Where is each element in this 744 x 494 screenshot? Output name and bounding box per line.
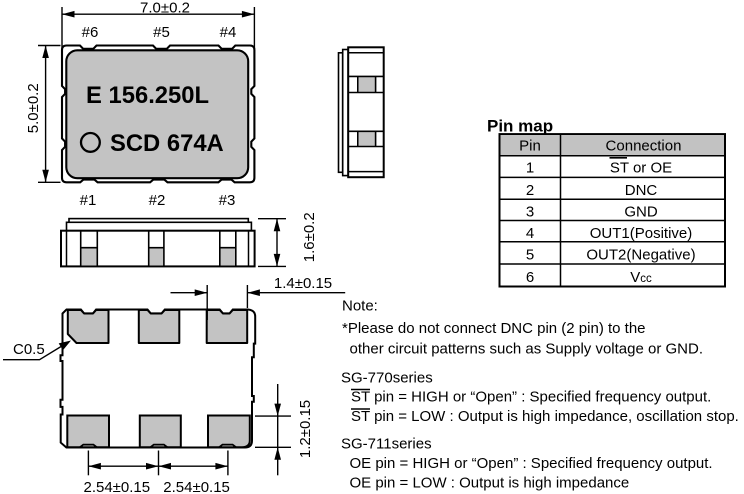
svg-text:#1: #1 [80, 192, 97, 209]
svg-text:Pin map: Pin map [487, 116, 553, 135]
svg-text:1: 1 [526, 160, 534, 177]
svg-text:Connection: Connection [606, 137, 682, 154]
svg-text:SG-711series: SG-711series [341, 435, 432, 452]
svg-text:E 156.250L: E 156.250L [86, 82, 209, 109]
svg-text:4: 4 [526, 225, 534, 242]
svg-text:5: 5 [526, 247, 534, 264]
svg-text:#6: #6 [82, 24, 99, 41]
svg-text:#4: #4 [220, 24, 237, 41]
svg-text:*Please do not connect DNC pin: *Please do not connect DNC pin (2 pin) t… [342, 320, 646, 337]
svg-text:other circuit patterns such as: other circuit patterns such as Supply vo… [350, 340, 704, 357]
svg-text:ST pin = HIGH or “Open” : Spec: ST pin = HIGH or “Open” : Specified freq… [351, 389, 711, 406]
svg-text:OUT2(Negative): OUT2(Negative) [586, 247, 695, 264]
svg-text:OUT1(Positive): OUT1(Positive) [590, 225, 693, 242]
svg-text:5.0±0.2: 5.0±0.2 [25, 83, 42, 133]
svg-text:OE pin = HIGH or “Open” : Spec: OE pin = HIGH or “Open” : Specified freq… [350, 455, 713, 472]
svg-text:1.2±0.15: 1.2±0.15 [297, 400, 314, 458]
svg-text:Note:: Note: [342, 298, 378, 315]
svg-text:7.0±0.2: 7.0±0.2 [140, 0, 190, 17]
svg-text:2.54±0.15: 2.54±0.15 [163, 479, 230, 494]
svg-text:6: 6 [526, 269, 534, 286]
svg-text:SCD 674A: SCD 674A [110, 130, 224, 157]
svg-text:2.54±0.15: 2.54±0.15 [83, 479, 150, 494]
svg-text:1.4±0.15: 1.4±0.15 [274, 275, 332, 292]
svg-text:Pin: Pin [519, 137, 541, 154]
svg-text:ST or OE: ST or OE [610, 160, 672, 177]
svg-text:#2: #2 [149, 192, 166, 209]
svg-text:SG-770series: SG-770series [341, 369, 433, 386]
svg-text:#3: #3 [219, 192, 236, 209]
svg-text:C0.5: C0.5 [13, 341, 45, 358]
svg-text:OE pin = LOW : Output is high: OE pin = LOW : Output is high impedance [350, 474, 630, 491]
svg-text:#5: #5 [153, 24, 170, 41]
svg-text:GND: GND [624, 203, 658, 220]
svg-text:2: 2 [526, 182, 534, 199]
svg-text:3: 3 [526, 203, 534, 220]
svg-text:1.6±0.2: 1.6±0.2 [301, 212, 318, 262]
svg-text:DNC: DNC [625, 182, 658, 199]
svg-text:ST pin = LOW : Output is high: ST pin = LOW : Output is high impedance,… [351, 408, 739, 425]
